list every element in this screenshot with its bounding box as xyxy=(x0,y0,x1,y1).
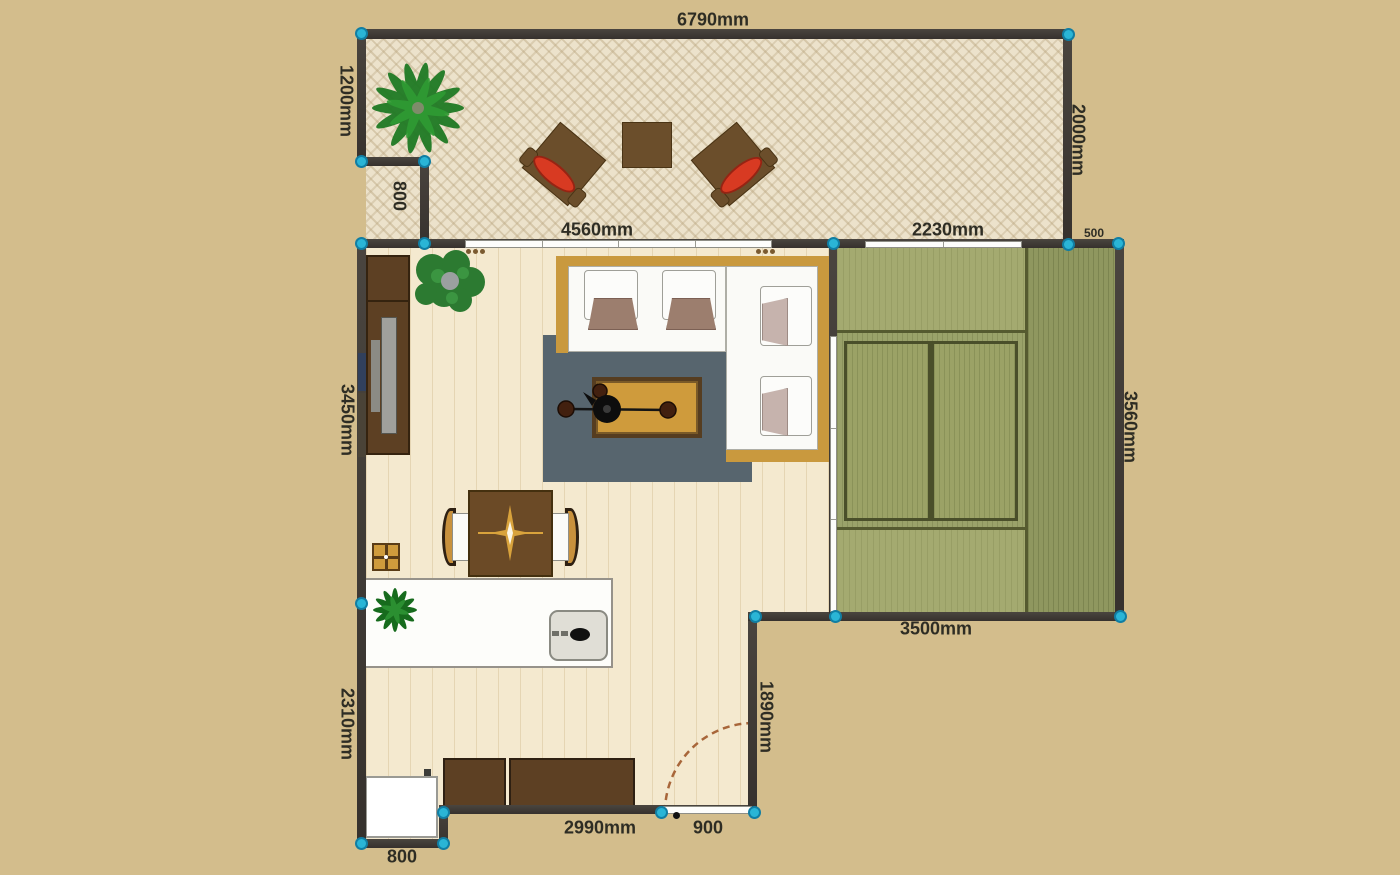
dim-label-living-top: 4560mm xyxy=(561,220,633,241)
window-track-mark xyxy=(480,249,485,254)
control-point[interactable] xyxy=(355,237,368,250)
control-point[interactable] xyxy=(749,610,762,623)
dim-label-tatami-right: 3560mm xyxy=(1120,391,1141,463)
sofa-cushion xyxy=(666,298,716,330)
terrace-step-wall-v[interactable] xyxy=(420,157,429,248)
window-pane xyxy=(466,241,543,247)
control-point[interactable] xyxy=(1114,610,1127,623)
tatami-mat-center-left xyxy=(844,341,931,521)
dim-label-top-width: 6790mm xyxy=(677,10,749,31)
terrace-top-wall[interactable] xyxy=(357,29,1072,39)
window-track-mark xyxy=(763,249,768,254)
dim-label-terrace-left: 1200mm xyxy=(336,65,357,137)
left-wall-window-lower[interactable] xyxy=(358,393,366,457)
sofa-frame-left xyxy=(556,256,568,353)
window-track-mark xyxy=(473,249,478,254)
tatami-mat-bottom-band xyxy=(837,527,1025,612)
dining-chair-right-seat xyxy=(551,513,569,561)
control-point[interactable] xyxy=(829,610,842,623)
dim-label-living-left-lower: 2310mm xyxy=(337,688,358,760)
cooktop-button xyxy=(552,631,559,636)
control-point[interactable] xyxy=(355,837,368,850)
control-point[interactable] xyxy=(437,806,450,819)
window-pane xyxy=(696,241,772,247)
door-pane xyxy=(831,429,836,521)
control-point[interactable] xyxy=(355,155,368,168)
tea-set[interactable] xyxy=(552,380,682,430)
cabinet-divider xyxy=(368,300,408,302)
tatami-mat-center-right xyxy=(931,341,1018,521)
sofa-cushion xyxy=(762,388,788,436)
cooktop-button xyxy=(561,631,568,636)
tv-screen[interactable] xyxy=(381,317,397,434)
cooktop-knob xyxy=(570,628,590,641)
sofa-frame-chaise-bottom xyxy=(726,450,830,462)
dim-label-alcove-width: 800 xyxy=(387,847,417,868)
tatami-mat-right-strip xyxy=(1025,248,1118,612)
control-point[interactable] xyxy=(1062,238,1075,251)
dim-label-door-width: 900 xyxy=(693,818,723,839)
floor-plan-canvas: 6790mm 1200mm 2000mm 800 4560mm 2230mm 5… xyxy=(0,0,1400,875)
control-point[interactable] xyxy=(355,27,368,40)
control-point[interactable] xyxy=(355,597,368,610)
dim-label-terrace-step: 800 xyxy=(389,181,410,211)
tatami-mat-top-band xyxy=(837,248,1025,333)
window-pane xyxy=(619,241,696,247)
door-swing-arc xyxy=(660,718,756,814)
dim-label-terrace-right: 2000mm xyxy=(1068,104,1089,176)
window-track-mark xyxy=(770,249,775,254)
terrace-table[interactable] xyxy=(622,122,672,168)
island-plant[interactable] xyxy=(371,586,419,634)
living-sliding-window[interactable] xyxy=(465,240,772,248)
left-wall-window-upper[interactable] xyxy=(358,353,366,391)
left-wall[interactable] xyxy=(357,239,366,848)
dim-label-tatami-window: 2230mm xyxy=(912,220,984,241)
window-pane xyxy=(543,241,620,247)
window-track-mark xyxy=(466,249,471,254)
monstera-plant[interactable] xyxy=(408,248,492,322)
dim-label-living-left-upper: 3450mm xyxy=(337,384,358,456)
sofa-cushion xyxy=(588,298,638,330)
terrace-palm-plant[interactable] xyxy=(368,58,468,158)
control-point[interactable] xyxy=(827,237,840,250)
control-point[interactable] xyxy=(1062,28,1075,41)
window-pane xyxy=(866,242,944,247)
white-cabinet[interactable] xyxy=(365,776,438,838)
control-point[interactable] xyxy=(437,837,450,850)
control-point[interactable] xyxy=(418,237,431,250)
door-hinge-dot xyxy=(673,812,680,819)
door-pane xyxy=(831,337,836,429)
dining-table-star-motif xyxy=(478,503,543,564)
dim-label-tatami-bottom: 3500mm xyxy=(900,619,972,640)
sofa-cushion xyxy=(762,298,788,346)
dim-label-tatami-offset: 500 xyxy=(1084,226,1104,240)
cabinet-knob xyxy=(424,769,431,776)
control-point[interactable] xyxy=(748,806,761,819)
dim-label-living-right-lower: 1890mm xyxy=(756,681,777,753)
sideboard-small[interactable] xyxy=(443,758,506,807)
control-point[interactable] xyxy=(418,155,431,168)
tv-bracket xyxy=(371,340,380,412)
window-track-mark xyxy=(756,249,761,254)
tatami-sliding-door[interactable] xyxy=(830,336,837,612)
sideboard-large[interactable] xyxy=(509,758,635,807)
terrace-left-wall[interactable] xyxy=(357,29,366,166)
control-point[interactable] xyxy=(1112,237,1125,250)
lamp-center-dot xyxy=(384,555,388,559)
dim-label-bottom-wall: 2990mm xyxy=(564,818,636,839)
door-pane xyxy=(831,520,836,611)
control-point[interactable] xyxy=(655,806,668,819)
window-pane xyxy=(944,242,1021,247)
tatami-window[interactable] xyxy=(865,241,1022,248)
